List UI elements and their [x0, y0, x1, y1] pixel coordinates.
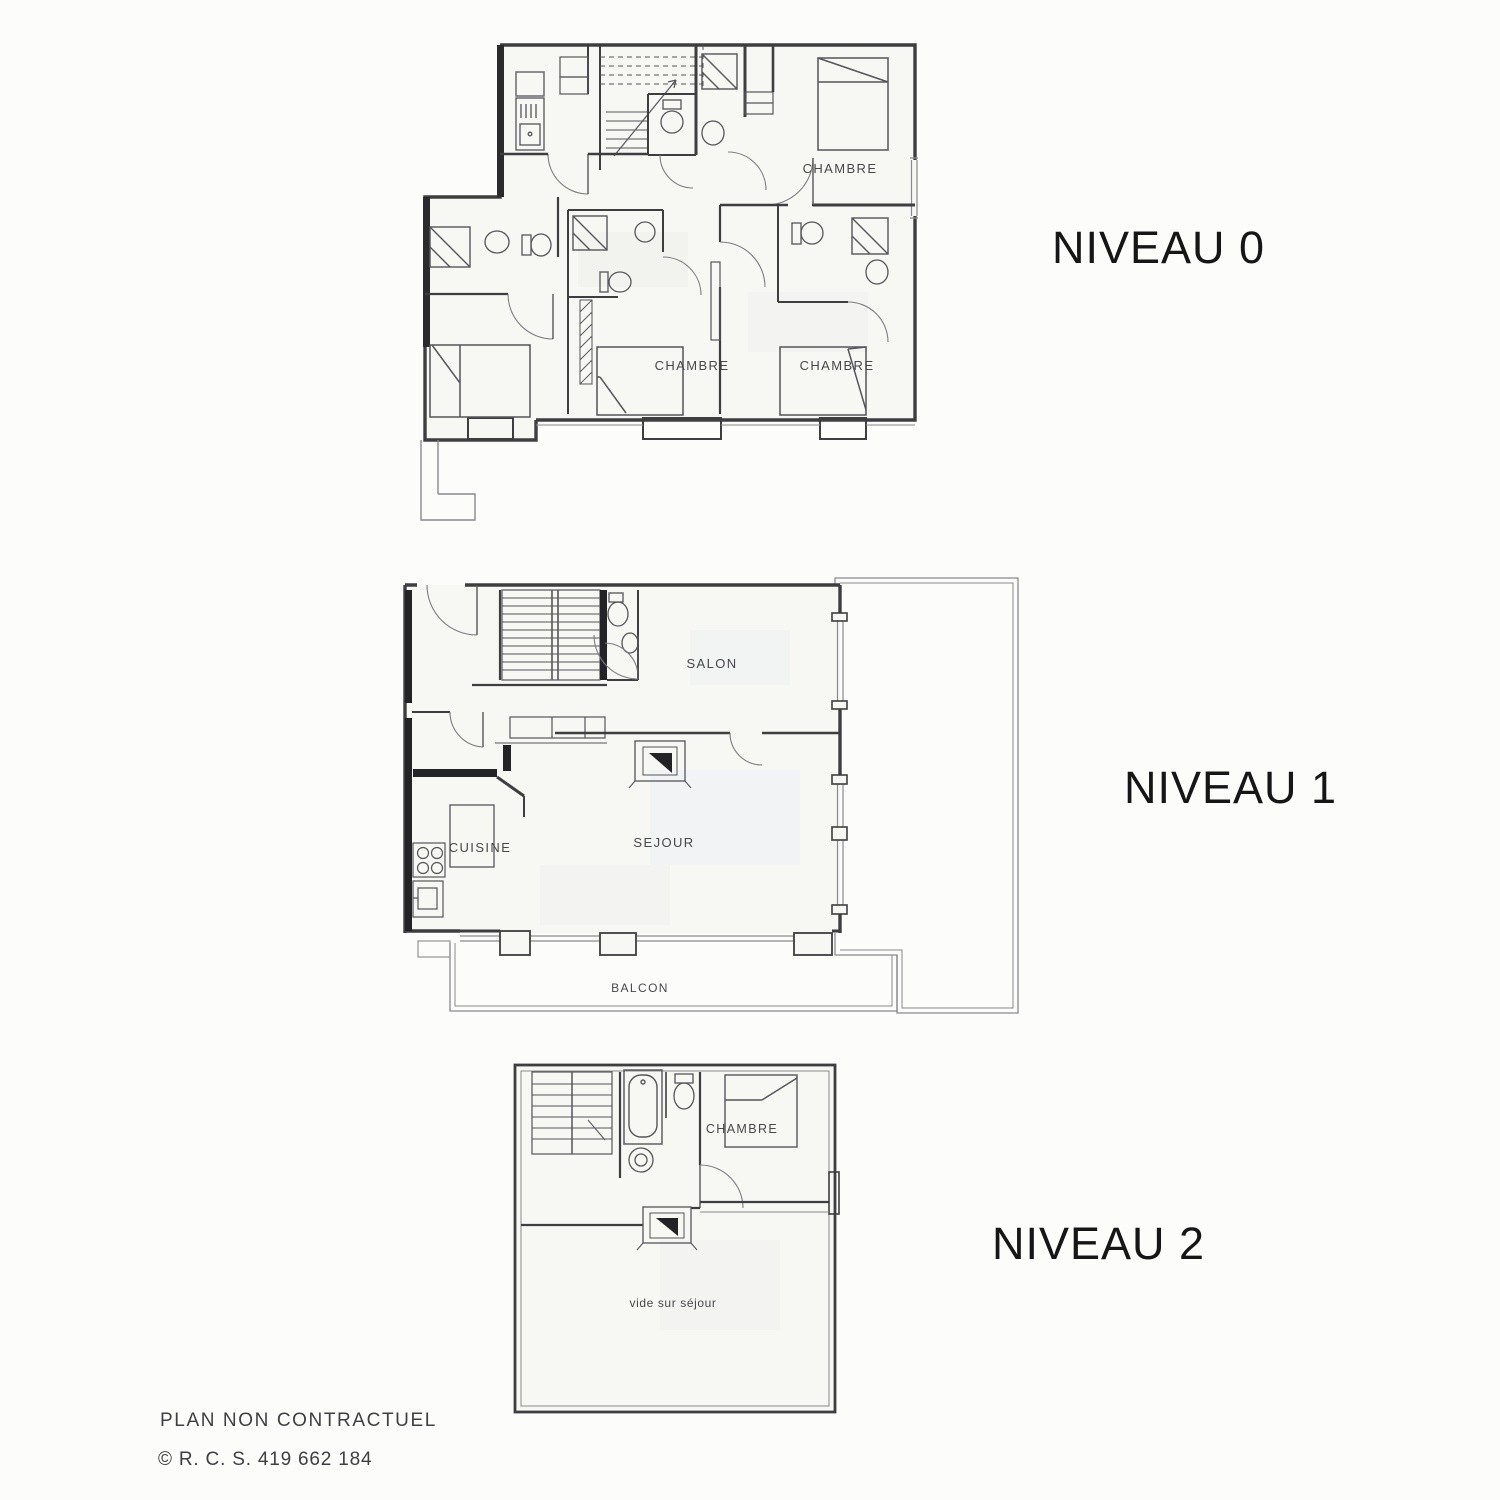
footer-registration: © R. C. S. 419 662 184	[158, 1449, 372, 1471]
plan0-poche-wall	[423, 197, 430, 347]
scan-blotch	[578, 232, 688, 287]
niveau-1-floor-plan: BALCON	[400, 575, 1030, 1045]
scan-blotch	[650, 770, 800, 865]
scanned-floor-plan-page: CHAMBRE	[0, 0, 1500, 1500]
room-label: CHAMBRE	[706, 1122, 778, 1136]
plan1-poche-wall	[405, 590, 412, 703]
terrace	[835, 578, 1018, 1013]
bottom-wall-windows	[460, 931, 840, 955]
exterior-step	[418, 941, 450, 957]
room-label: BALCON	[611, 981, 669, 995]
level-title-niveau-2: NIVEAU 2	[992, 1218, 1205, 1270]
niveau-2-floor-plan: CHAMBRE vide sur séjour	[510, 1060, 840, 1425]
room-label: CHAMBRE	[655, 358, 730, 373]
level-title-niveau-1: NIVEAU 1	[1124, 762, 1337, 814]
room-label: CUISINE	[449, 840, 512, 855]
room-label: vide sur séjour	[629, 1296, 716, 1310]
plan0-poche-wall	[497, 45, 504, 197]
exterior-step	[421, 440, 475, 520]
level-title-niveau-0: NIVEAU 0	[1052, 222, 1265, 274]
footer-disclaimer: PLAN NON CONTRACTUEL	[160, 1410, 437, 1432]
room-label: CHAMBRE	[803, 161, 878, 176]
plan1-poche-wall	[405, 718, 412, 931]
scan-blotch	[540, 865, 670, 925]
room-label: CHAMBRE	[800, 358, 875, 373]
niveau-0-floor-plan: CHAMBRE	[418, 42, 918, 527]
scan-blotch	[660, 1240, 780, 1330]
room-label: SALON	[686, 656, 737, 671]
room-label: SEJOUR	[633, 835, 694, 850]
